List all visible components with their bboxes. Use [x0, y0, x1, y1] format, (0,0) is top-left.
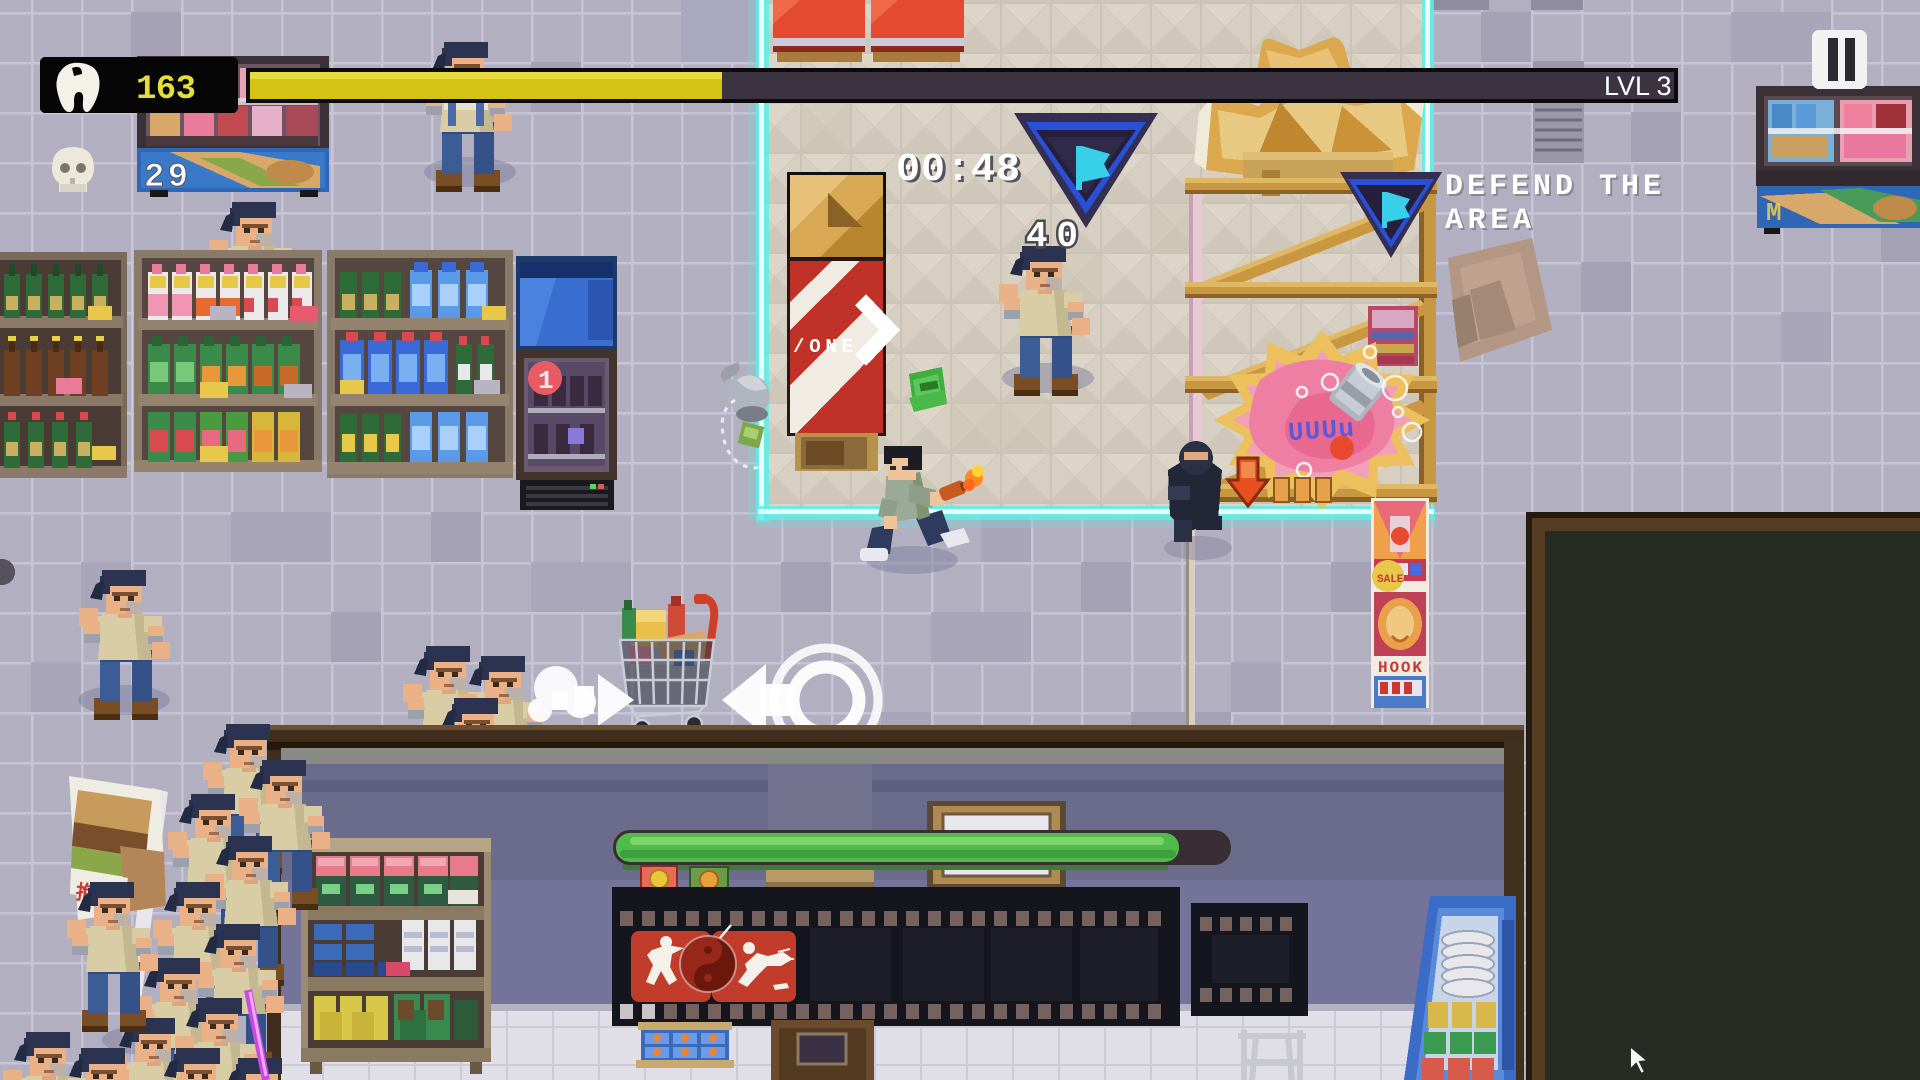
svg-text:SALE: SALE: [1377, 574, 1404, 586]
svg-text:M: M: [1766, 198, 1782, 228]
svg-text:LVL 3: LVL 3: [1604, 71, 1672, 101]
svg-text:HOOK: HOOK: [1378, 659, 1422, 677]
svg-text:00:48: 00:48: [896, 148, 1020, 193]
svg-text:1: 1: [538, 366, 554, 396]
svg-text:163: 163: [136, 71, 196, 109]
